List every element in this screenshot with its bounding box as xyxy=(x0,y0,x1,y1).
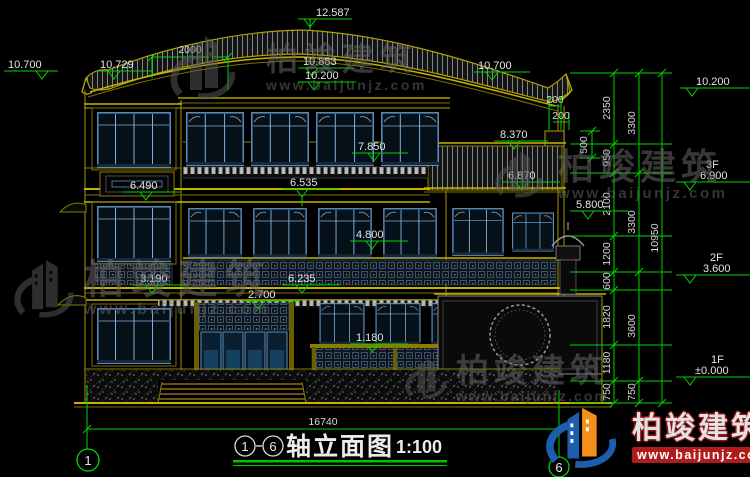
elev-floor1: ±0.000 xyxy=(695,365,729,377)
elev-eave-right: 10.700 xyxy=(478,60,512,72)
elev-ridge-lower: 10.853 xyxy=(303,56,337,68)
axis-bubble-left: 1 xyxy=(77,449,99,471)
elev-band-2f: 6.235 xyxy=(288,273,316,285)
elev-eave-left-inner: 10.729 xyxy=(100,59,134,71)
elevation-marker-eave-left xyxy=(4,71,58,79)
dim-200-b: 200 xyxy=(552,110,570,122)
elev-wing-floor: 5.800 xyxy=(576,199,604,211)
elev-sill-3f: 7.850 xyxy=(358,141,386,153)
dim-10950: 10950 xyxy=(649,223,661,252)
title-axis-to: 6 xyxy=(269,439,276,454)
elev-railing: 1.180 xyxy=(356,332,384,344)
pagoda-post xyxy=(552,222,584,294)
plinth xyxy=(84,369,560,402)
axis-bubble-left-num: 1 xyxy=(84,453,91,468)
elev-ridge: 12.587 xyxy=(316,7,350,19)
dim-750-inner: 750 xyxy=(601,383,613,401)
dim-16740: 16740 xyxy=(308,416,337,428)
entry-steps[interactable] xyxy=(158,380,306,403)
dim-200-a: 200 xyxy=(546,94,564,106)
elev-parapet-right: 10.200 xyxy=(696,76,730,88)
elev-sill-2f: 4.800 xyxy=(356,229,384,241)
elev-canopy: 2.700 xyxy=(248,289,276,301)
elevation-marker-2f xyxy=(676,275,750,283)
dim-1200: 1200 xyxy=(601,242,613,266)
dim-500: 500 xyxy=(578,136,590,154)
company-logo-url: www.baijunjz.com xyxy=(632,447,750,463)
title-underline-thin xyxy=(233,465,447,466)
title-axis-from: 1 xyxy=(241,439,248,454)
elev-wing-eave: 6.870 xyxy=(508,170,536,182)
elev-wing-roof: 8.370 xyxy=(500,129,528,141)
title-scale: 1:100 xyxy=(396,437,442,457)
dim-950: 950 xyxy=(601,149,613,167)
elevation-marker-1f xyxy=(676,377,750,385)
upper-eave-band xyxy=(84,98,450,108)
dim-750-mid: 750 xyxy=(626,383,638,401)
center-windows-3f xyxy=(186,113,439,165)
dim-3300-a: 3300 xyxy=(626,111,638,135)
right-wing-roof xyxy=(424,131,566,192)
dim-2000: 2000 xyxy=(178,44,202,56)
elev-eave-left: 10.700 xyxy=(8,59,42,71)
drawing-title: 1 6 轴立面图 1:100 xyxy=(233,432,447,466)
elevation-marker-parapet-right xyxy=(680,88,750,96)
cad-canvas: 2350 950 2100 1200 600 1820 1180 750 330… xyxy=(0,0,750,477)
elevation-marker-ridge xyxy=(298,19,352,30)
title-text: 轴立面图 xyxy=(286,432,394,461)
company-logo-brand: 柏竣建筑 xyxy=(632,414,750,444)
dim-3300-b: 3300 xyxy=(626,210,638,234)
elevation-marker-band-3f xyxy=(282,189,340,206)
left-tower xyxy=(58,108,176,366)
ground-line xyxy=(74,403,612,407)
dim-1820: 1820 xyxy=(601,305,613,329)
elev-tower-band: 6.490 xyxy=(130,180,158,192)
elevation-marker-wing-floor xyxy=(570,211,628,219)
elev-floor3: 6.900 xyxy=(700,170,728,182)
elev-band-3f: 6.535 xyxy=(290,177,318,189)
dim-600: 600 xyxy=(601,272,613,290)
elev-tower-low: 3.190 xyxy=(140,273,168,285)
elev-ridge-base: 10.200 xyxy=(305,70,339,82)
dim-3600: 3600 xyxy=(626,314,638,338)
elevation-marker-3f xyxy=(676,182,750,190)
elev-floor2: 3.600 xyxy=(703,263,731,275)
company-logo-icon xyxy=(542,404,626,474)
elevation-marker-ridge-base xyxy=(298,82,356,90)
title-underline-thick xyxy=(233,460,447,463)
dim-1180: 1180 xyxy=(601,352,613,375)
dim-2350: 2350 xyxy=(601,96,613,120)
company-logo: 柏竣建筑 www.baijunjz.com xyxy=(542,404,750,474)
